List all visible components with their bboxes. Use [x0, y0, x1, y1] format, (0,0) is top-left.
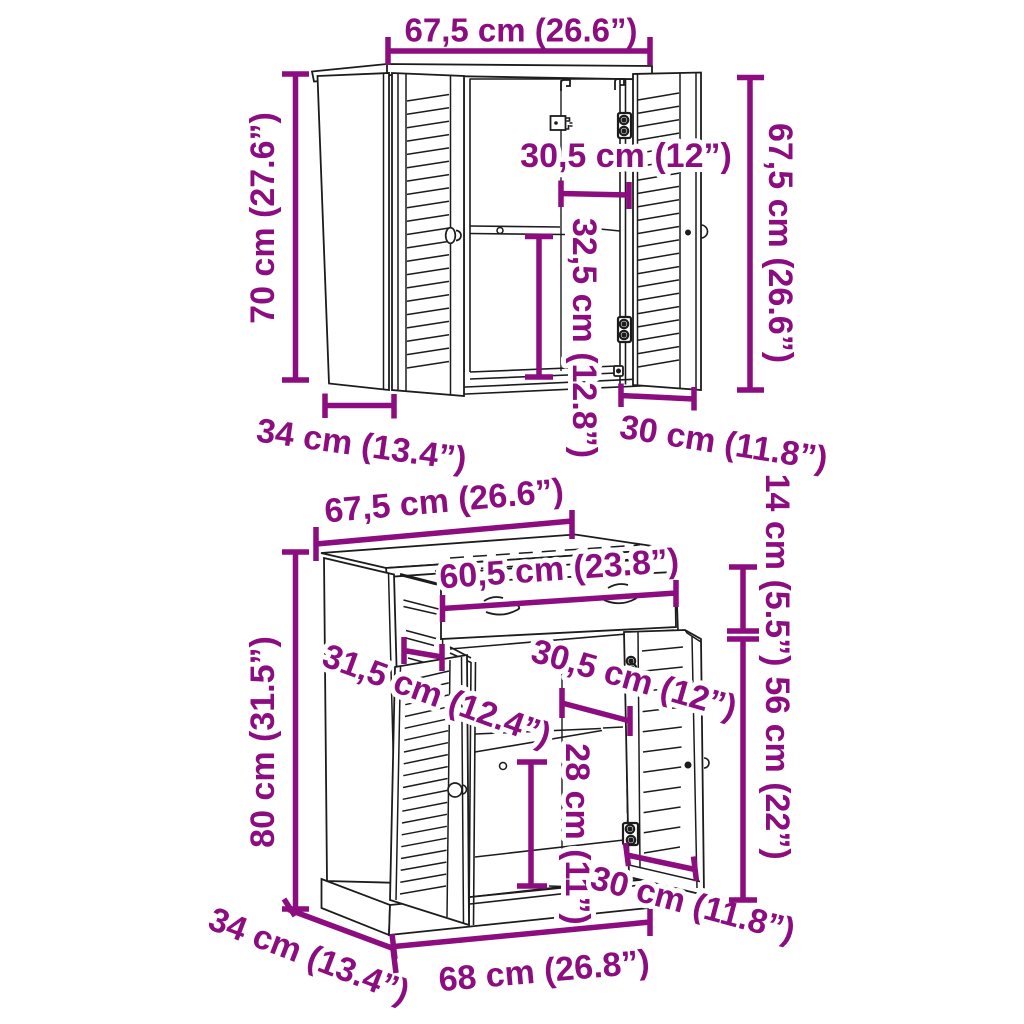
- svg-text:67,5 cm (26.6”): 67,5 cm (26.6”): [405, 12, 638, 49]
- svg-text:80 cm (31.5”): 80 cm (31.5”): [244, 636, 282, 848]
- svg-text:28 cm (11”): 28 cm (11”): [558, 743, 596, 924]
- svg-text:14 cm (5.5”): 14 cm (5.5”): [758, 474, 796, 667]
- svg-text:32,5 cm (12.8”): 32,5 cm (12.8”): [565, 218, 603, 458]
- svg-text:30,5 cm (12”): 30,5 cm (12”): [520, 137, 732, 175]
- svg-text:67,5 cm (26.6”): 67,5 cm (26.6”): [761, 123, 799, 363]
- svg-text:56 cm (22”): 56 cm (22”): [758, 676, 796, 859]
- svg-text:70 cm (27.6”): 70 cm (27.6”): [244, 112, 282, 324]
